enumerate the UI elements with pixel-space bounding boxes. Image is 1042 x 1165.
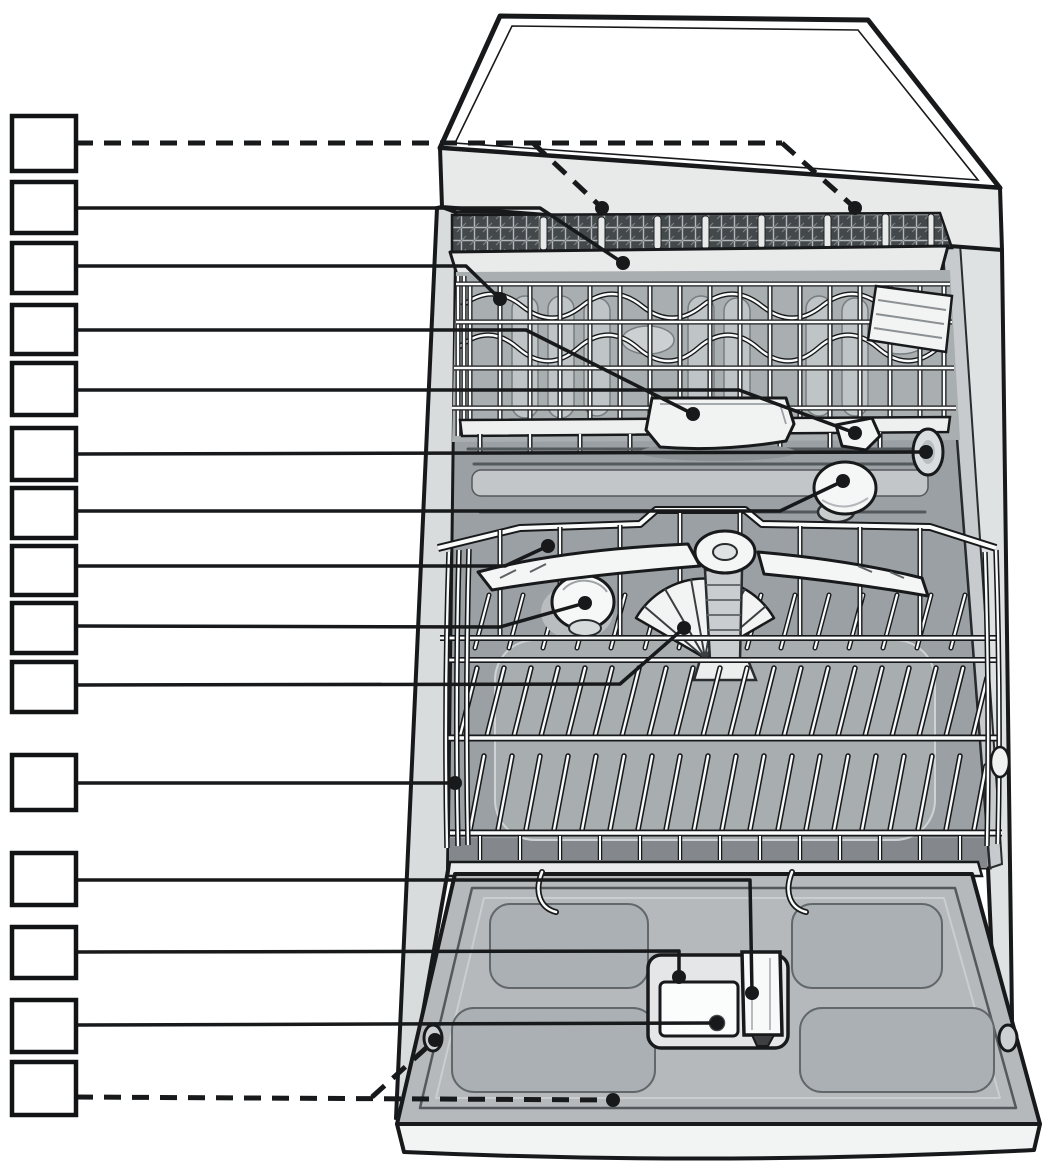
callout-dot-15-2 — [428, 1033, 442, 1047]
callout-dot-2-1 — [616, 256, 630, 270]
callout-dot-11-1 — [448, 776, 462, 790]
cup-shelf — [868, 286, 952, 352]
callout-dot-12-1 — [745, 986, 759, 1000]
callout-box-7 — [12, 488, 76, 538]
callout-dot-15-1 — [606, 1093, 620, 1107]
detergent-lid — [660, 982, 738, 1036]
callout-box-10 — [12, 662, 76, 712]
callout-leader-14-1 — [76, 1023, 717, 1025]
callout-box-1 — [12, 116, 76, 171]
callout-box-14 — [12, 1000, 76, 1052]
callout-box-6 — [12, 428, 76, 480]
callout-dot-14-1 — [710, 1016, 724, 1030]
callout-box-8 — [12, 546, 76, 595]
callout-dot-9-1 — [578, 596, 592, 610]
callout-dot-10-1 — [677, 621, 691, 635]
callout-dot-6-1 — [919, 445, 933, 459]
callout-dot-7-1 — [836, 474, 850, 488]
callout-dot-1-1 — [595, 201, 609, 215]
diagram-page — [0, 0, 1042, 1165]
callout-11 — [12, 755, 462, 810]
callout-box-12 — [12, 853, 76, 905]
callout-dot-5-1 — [848, 426, 862, 440]
callout-box-5 — [12, 363, 76, 415]
dishwasher-parts-illustration — [0, 0, 1042, 1165]
callout-dot-3-1 — [493, 292, 507, 306]
callout-box-2 — [12, 182, 76, 233]
callout-leader-6-1 — [76, 452, 926, 454]
callout-dot-8-1 — [541, 539, 555, 553]
door-bottom-lip — [397, 1124, 1040, 1159]
callout-dot-4-1 — [686, 407, 700, 421]
callout-box-11 — [12, 755, 76, 810]
detergent-dispenser — [648, 952, 788, 1048]
callout-box-13 — [12, 927, 76, 978]
callout-box-4 — [12, 305, 76, 354]
door-hinge-right — [999, 1025, 1017, 1051]
callout-leader-15-1 — [76, 1097, 613, 1100]
door — [397, 862, 1040, 1159]
callout-dot-1-2 — [848, 201, 862, 215]
callout-box-15 — [12, 1062, 76, 1115]
callout-box-3 — [12, 243, 76, 293]
callout-box-9 — [12, 603, 76, 653]
callout-dot-13-1 — [672, 970, 686, 984]
